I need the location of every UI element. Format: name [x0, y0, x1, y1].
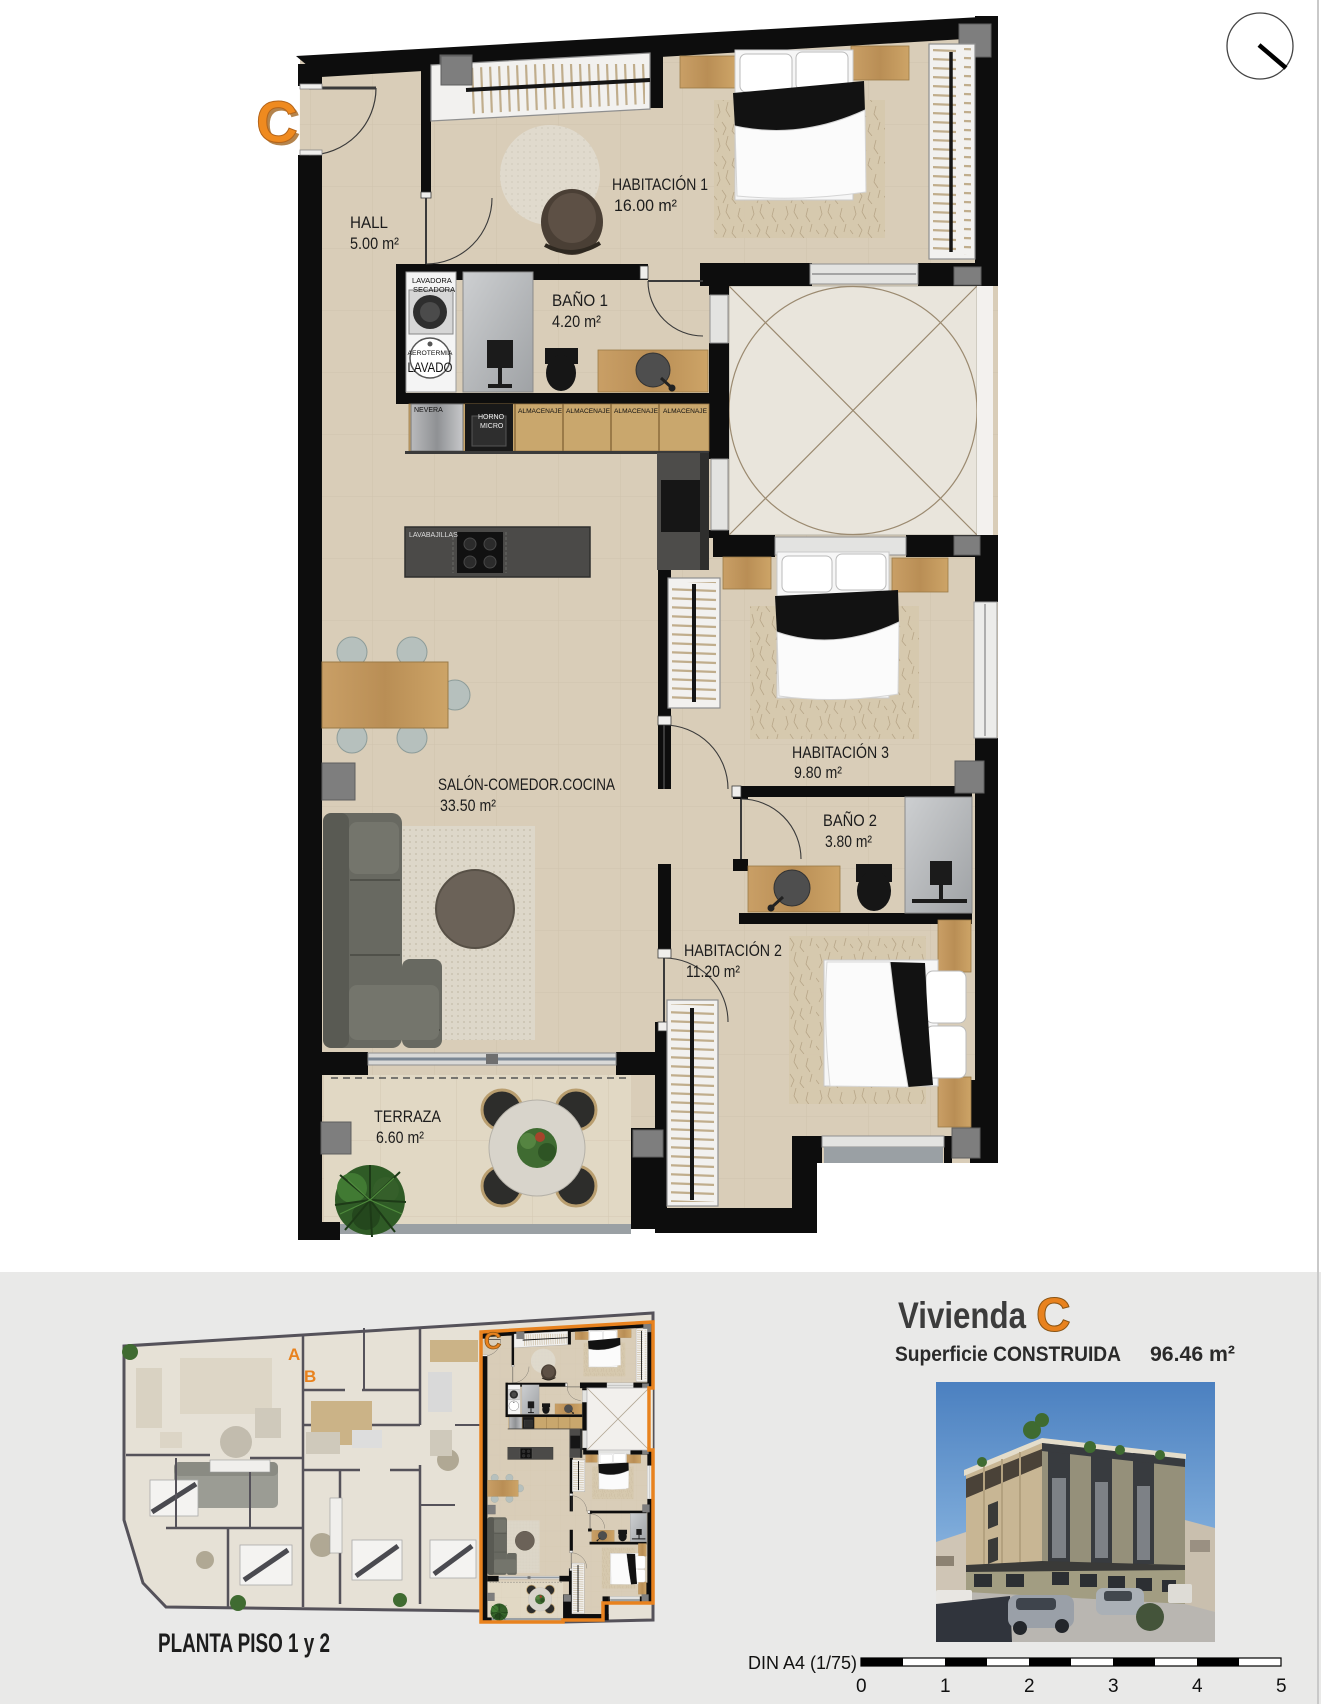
svg-text:9.80 m²: 9.80 m² — [794, 763, 842, 782]
svg-text:C: C — [256, 90, 298, 155]
svg-text:LAVADORA: LAVADORA — [412, 276, 452, 285]
svg-text:LAVABAJILLAS: LAVABAJILLAS — [409, 532, 458, 539]
svg-text:TERRAZA: TERRAZA — [374, 1107, 442, 1126]
svg-text:B: B — [304, 1367, 316, 1386]
svg-text:HABITACIÓN 2: HABITACIÓN 2 — [684, 941, 782, 960]
svg-text:HABITACIÓN 3: HABITACIÓN 3 — [792, 743, 889, 762]
svg-text:96.46 m²: 96.46 m² — [1150, 1342, 1235, 1366]
svg-text:SECADORA: SECADORA — [413, 285, 455, 294]
svg-text:4.20 m²: 4.20 m² — [552, 312, 601, 331]
svg-text:2: 2 — [1024, 1676, 1035, 1697]
svg-text:HABITACIÓN 1: HABITACIÓN 1 — [612, 175, 708, 194]
svg-text:DIN A4 (1/75): DIN A4 (1/75) — [748, 1653, 857, 1673]
svg-text:HALL: HALL — [350, 213, 388, 232]
svg-text:LAVADO: LAVADO — [408, 360, 453, 375]
svg-text:NEVERA: NEVERA — [414, 407, 443, 414]
svg-text:PLANTA PISO 1 y 2: PLANTA PISO 1 y 2 — [158, 1628, 330, 1658]
svg-text:ALMACENAJE: ALMACENAJE — [663, 408, 708, 415]
svg-text:AEROTERMIA: AEROTERMIA — [408, 350, 453, 357]
svg-text:HORNO: HORNO — [478, 414, 505, 421]
svg-text:11.20 m²: 11.20 m² — [686, 962, 740, 981]
svg-text:1: 1 — [940, 1676, 951, 1697]
svg-text:ALMACENAJE: ALMACENAJE — [614, 408, 659, 415]
svg-text:SALÓN-COMEDOR.COCINA: SALÓN-COMEDOR.COCINA — [438, 775, 616, 794]
svg-text:5.00 m²: 5.00 m² — [350, 234, 399, 253]
svg-text:4: 4 — [1192, 1676, 1203, 1697]
svg-text:A: A — [288, 1345, 300, 1364]
svg-text:C: C — [484, 1328, 501, 1355]
svg-text:33.50 m²: 33.50 m² — [440, 796, 496, 815]
svg-text:5: 5 — [1276, 1676, 1287, 1697]
svg-text:ALMACENAJE: ALMACENAJE — [518, 408, 563, 415]
svg-text:0: 0 — [856, 1676, 867, 1697]
svg-text:BAÑO 1: BAÑO 1 — [552, 291, 608, 310]
svg-text:6.60 m²: 6.60 m² — [376, 1128, 424, 1147]
svg-text:16.00 m²: 16.00 m² — [614, 196, 677, 215]
svg-text:3.80 m²: 3.80 m² — [825, 832, 872, 851]
svg-text:Superficie CONSTRUIDA: Superficie CONSTRUIDA — [895, 1342, 1121, 1366]
svg-text:MICRO: MICRO — [480, 423, 504, 430]
svg-text:ALMACENAJE: ALMACENAJE — [566, 408, 611, 415]
svg-text:BAÑO 2: BAÑO 2 — [823, 811, 877, 830]
svg-text:C: C — [1036, 1289, 1071, 1342]
svg-text:3: 3 — [1108, 1676, 1119, 1697]
svg-text:Vivienda: Vivienda — [898, 1295, 1026, 1336]
